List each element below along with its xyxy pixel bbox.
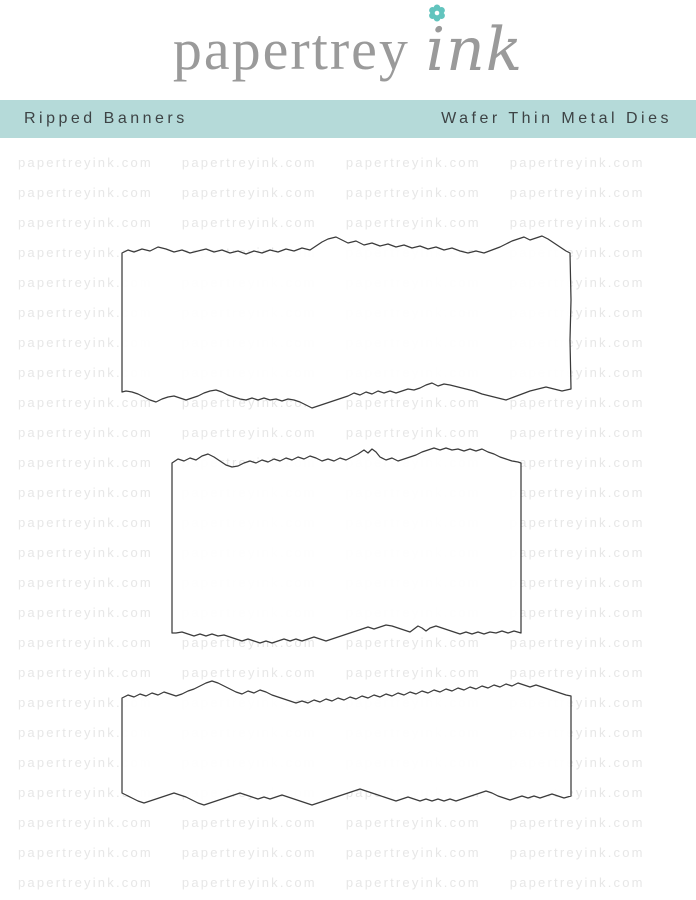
die-shapes — [0, 0, 696, 900]
ripped-banner-die-2 — [172, 448, 521, 643]
ripped-banner-die-1 — [122, 236, 571, 408]
product-image: papertreyink.compapertreyink.compapertre… — [0, 0, 696, 900]
ripped-banner-die-3 — [122, 681, 571, 805]
